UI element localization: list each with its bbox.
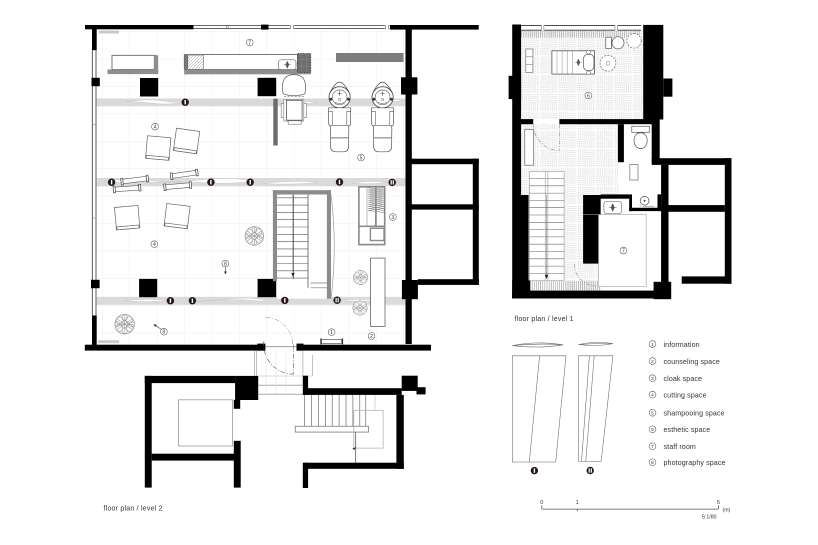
svg-text:4: 4	[651, 393, 654, 399]
svg-text:4: 4	[153, 242, 156, 248]
svg-text:esthetic space: esthetic space	[664, 426, 711, 434]
svg-text:7: 7	[248, 40, 251, 46]
svg-text:2: 2	[370, 334, 373, 340]
svg-text:(m): (m)	[723, 507, 731, 513]
svg-text:counseling space: counseling space	[664, 358, 720, 366]
svg-text:shampooing space: shampooing space	[664, 410, 725, 418]
svg-text:5: 5	[651, 411, 654, 417]
svg-text:6: 6	[651, 427, 654, 433]
svg-text:7: 7	[622, 249, 625, 255]
svg-text:floor plan / level 2: floor plan / level 2	[104, 506, 163, 513]
svg-text:5: 5	[717, 500, 720, 506]
svg-text:7: 7	[651, 444, 654, 450]
svg-text:8: 8	[651, 460, 654, 466]
svg-text:1: 1	[330, 330, 333, 336]
svg-text:8: 8	[162, 330, 165, 336]
svg-text:staff room: staff room	[664, 443, 696, 451]
svg-text:8: 8	[224, 261, 227, 267]
svg-text:6: 6	[587, 93, 590, 99]
svg-text:1: 1	[576, 500, 579, 506]
svg-text:information: information	[664, 341, 700, 349]
svg-text:cutting space: cutting space	[664, 392, 707, 400]
svg-text:S:1/80: S:1/80	[702, 515, 717, 521]
svg-text:3: 3	[651, 376, 654, 382]
svg-text:3: 3	[391, 215, 394, 221]
svg-text:0: 0	[540, 500, 543, 506]
svg-text:cloak space: cloak space	[664, 375, 703, 383]
svg-text:photography space: photography space	[664, 459, 726, 467]
svg-text:2: 2	[651, 359, 654, 365]
svg-text:floor plan / level 1: floor plan / level 1	[515, 316, 574, 323]
svg-text:1: 1	[651, 342, 654, 348]
svg-text:4: 4	[154, 125, 157, 131]
svg-text:5: 5	[360, 155, 363, 161]
